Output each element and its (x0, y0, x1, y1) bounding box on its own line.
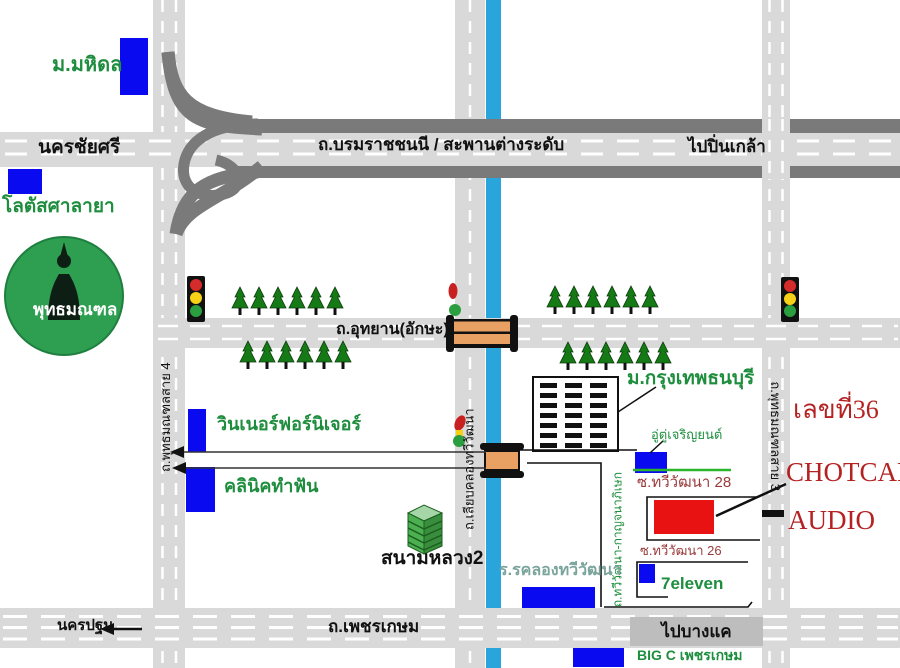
mahidol-building (120, 38, 148, 95)
label-khlong-thawiwatthana-school: ร.รคลองทวีวัฒนา (499, 562, 621, 580)
school-building (522, 587, 595, 608)
label-sanam-luang-2: สนามหลวง2 (381, 549, 483, 570)
label-phetkasem-road: ถ.เพชรเกษม (328, 618, 419, 637)
label-winner-furniture: วินเนอร์ฟอร์นิเจอร์ (217, 415, 361, 435)
route-arrow-lower (172, 462, 486, 474)
winner-furniture-building (188, 409, 206, 452)
dental-clinic-building (186, 467, 215, 512)
road-utthayan (153, 318, 900, 348)
label-seven-eleven: 7eleven (661, 575, 723, 594)
road-sai3-overpass (762, 118, 790, 179)
soi26-building (639, 564, 655, 583)
label-thawiwatthana-kanchanaphisek-road: ถ.ทวีวัฒนา-กาญจนาภิเษก (611, 470, 624, 610)
label-borommaratchachonnani-road: ถ.บรมราชชนนี / สะพานต่างระดับ (318, 136, 564, 155)
label-shop-name-line2: AUDIO (788, 506, 875, 536)
label-dental-clinic: คลินิคทำฟัน (224, 477, 318, 497)
label-big-c-phetkasem: BIG C เพชรเกษม (637, 648, 743, 663)
label-sai4-road: ถ.พุทธมณฑลสาย 4 (159, 357, 173, 477)
label-lotus-salaya: โลตัสศาลายา (2, 197, 115, 218)
chotcar-audio-shop (654, 500, 714, 534)
bridge-icon-soi (480, 443, 524, 478)
label-house-number: เลขที่36 (793, 396, 879, 425)
label-garage-tu-charoenyon: อู่ตู่เจริญยนต์ (651, 428, 722, 442)
bridge-icon-utthayan (446, 315, 518, 352)
traffic-light-icon-sai3 (781, 277, 799, 322)
traffic-light-icon-sai4 (187, 276, 205, 322)
bigc-building (573, 648, 624, 667)
lotus-building (8, 169, 42, 194)
label-utthayan-road: ถ.อุทยาน(อักษะ) (336, 321, 449, 339)
phutthamonthon-circle (5, 237, 123, 355)
label-nakhon-pathom: นครปฐม (57, 618, 113, 635)
map-canvas: ม.มหิดล โลตัสศาลายา นครชัยศรี ถ.บรมราชชน… (0, 0, 900, 668)
label-to-bang-khae: ไปบางแค (630, 617, 763, 646)
label-sai3-road: ถ.พุทธมณฑลสาย 3 (768, 376, 782, 496)
label-soi-28: ซ.ทวีวัฒนา 28 (637, 475, 731, 492)
tree-row-right-upper (547, 286, 658, 314)
tree-row-left-upper (232, 287, 343, 315)
label-to-pinklao: ไปปิ่นเกล้า (688, 138, 766, 157)
sanam-luang2-building (408, 505, 442, 554)
route-arrow-upper (170, 446, 486, 458)
label-bangkokthonburi-univ: ม.กรุงเทพธนบุรี (627, 369, 754, 390)
label-phutthamonthon: พุทธมณฑล (33, 301, 117, 320)
label-liap-khlong-road: ถ.เลียบคลองทวีวัฒนา (462, 392, 476, 547)
label-nakhon-chai-si: นครชัยศรี (38, 138, 120, 159)
label-mahidol-univ: ม.มหิดล (52, 54, 122, 76)
label-shop-name-line1: CHOTCAR (786, 458, 900, 488)
label-soi-26: ซ.ทวีวัฒนา 26 (640, 544, 722, 558)
shop-road-tick (762, 510, 784, 517)
bangkokthonburi-univ-building (533, 377, 618, 451)
